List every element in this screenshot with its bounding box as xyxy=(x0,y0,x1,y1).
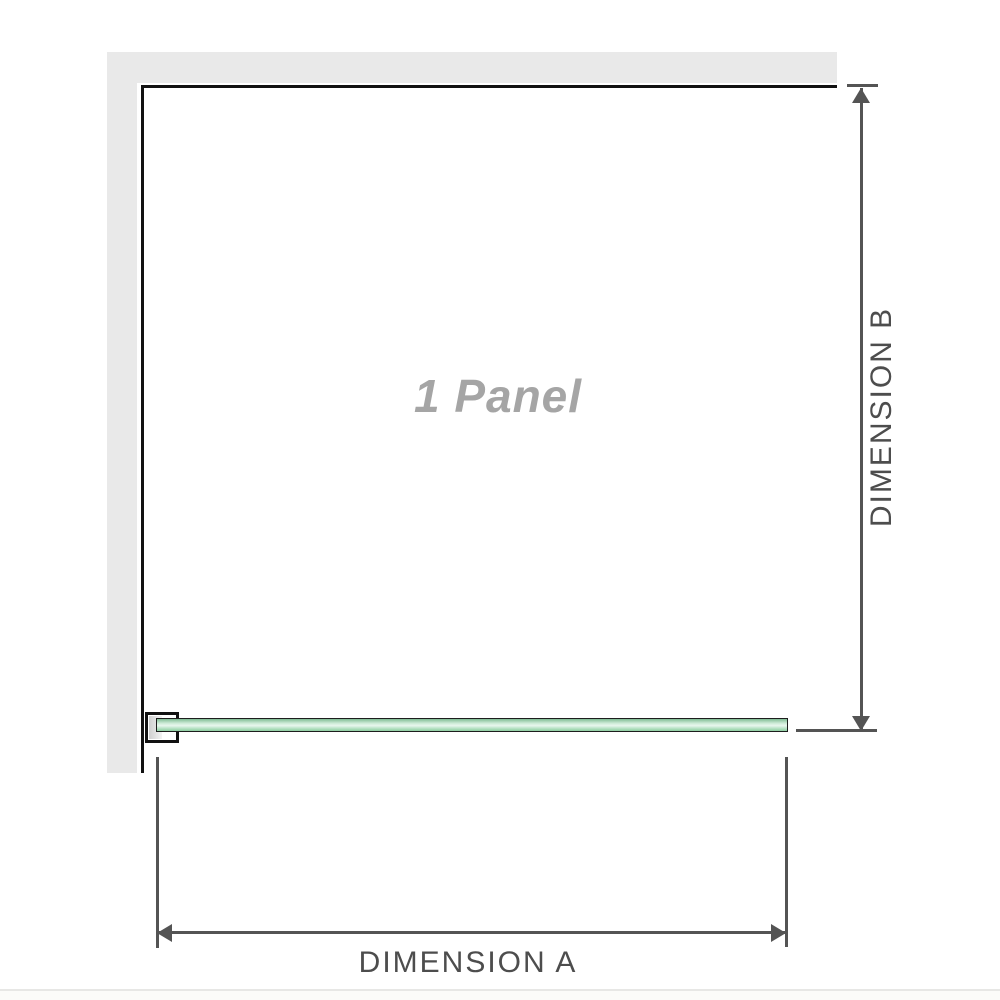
dimension-a-line xyxy=(158,931,786,934)
panel-count-label: 1 Panel xyxy=(414,369,582,423)
dimension-a-extension-tick-right xyxy=(785,757,788,947)
dimension-b-label: DIMENSION B xyxy=(865,307,899,527)
dimension-a-extension-tick-left xyxy=(156,757,159,948)
arrow-left-icon xyxy=(157,924,172,942)
top-wall xyxy=(107,52,837,83)
dimension-b-extension-tick-top xyxy=(847,84,878,87)
arrow-up-icon xyxy=(852,88,870,103)
arrow-down-icon xyxy=(852,716,870,731)
glass-panel-bar xyxy=(156,718,788,732)
panel-outline xyxy=(141,85,837,773)
side-wall xyxy=(107,52,137,773)
dimension-b-line xyxy=(860,88,863,731)
panel-dimension-diagram: 1 Panel DIMENSION B DIMENSION A xyxy=(0,0,1000,1000)
dimension-a-label: DIMENSION A xyxy=(359,946,578,980)
arrow-right-icon xyxy=(771,924,786,942)
footer-band xyxy=(0,991,1000,1000)
